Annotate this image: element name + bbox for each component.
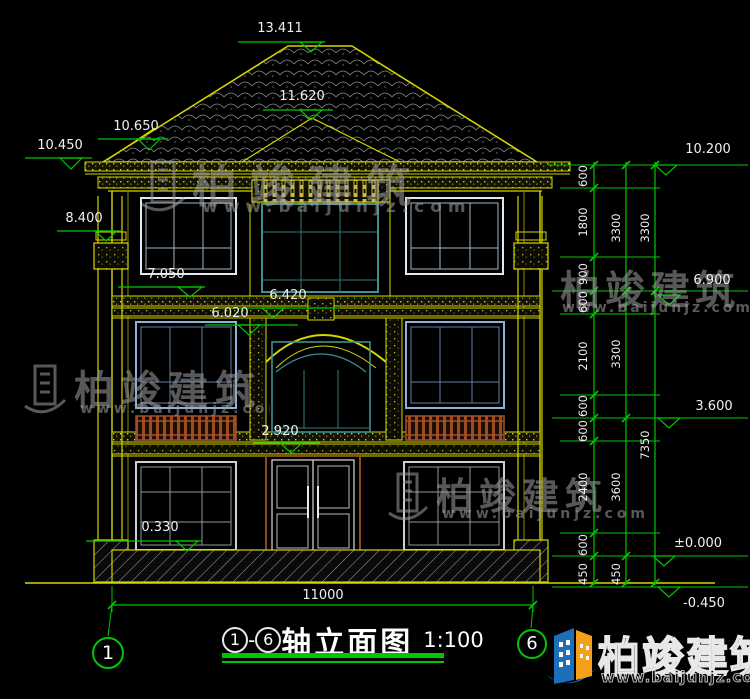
vdim: 7350 [638, 423, 652, 467]
title-axis-start: 1 [222, 627, 248, 653]
overall-width-dim: 11000 [293, 588, 353, 603]
title-scale: 1:100 [423, 628, 484, 652]
elevation-band-mid: 6.420 [254, 288, 322, 303]
elevation-f2-head: 6.020 [198, 306, 262, 321]
elevation-porch-ridge: 11.620 [262, 89, 342, 104]
vdim: 600 [576, 154, 590, 198]
elevation-site: -0.450 [668, 596, 740, 611]
title-underline-thin [222, 661, 444, 663]
center-arch-bay [250, 298, 402, 440]
elevation-door-head: 2.920 [248, 424, 312, 439]
vdim: 600 [576, 409, 590, 453]
roof [103, 46, 537, 162]
elevation-drawing [0, 0, 750, 699]
watermark-url: www.baijunjz.com [202, 197, 472, 217]
title-underline-thick [222, 653, 444, 658]
vdim: 3300 [609, 332, 623, 376]
elevation-eave-left: 10.450 [24, 138, 96, 153]
vdim: 2100 [576, 334, 590, 378]
watermark-logo-icon [138, 154, 188, 216]
cad-elevation-screenshot: 柏竣建筑 www.baijunjz.com 柏竣建筑 www.baijunjz.… [0, 0, 750, 699]
watermark-logo-icon [386, 468, 430, 526]
brand-logo-icon [540, 622, 602, 694]
elevation-eave-top-left: 10.650 [100, 119, 172, 134]
vdim: 3600 [609, 465, 623, 509]
watermark-left: 柏竣建筑 www.baijunjz.com [22, 356, 270, 424]
title-axis-end: 6 [255, 627, 281, 653]
watermark-url: www.baijunjz.com [562, 300, 750, 316]
entrance-door [266, 456, 360, 556]
vdim: 450 [576, 552, 590, 596]
elevation-f3-floor: 6.900 [680, 273, 744, 288]
watermark-logo-icon [22, 359, 68, 419]
vdim: 1800 [576, 200, 590, 244]
elevation-ground: ±0.000 [662, 536, 734, 551]
title-separator: - [248, 628, 255, 652]
vdim: 3300 [609, 206, 623, 250]
vdim: 2400 [576, 465, 590, 509]
elevation-f2-floor: 3.600 [682, 399, 746, 414]
brand-logo-url: www.baijunjz.com [601, 668, 750, 686]
vdim: 450 [609, 552, 623, 596]
elevation-eave-right: 10.200 [672, 142, 744, 157]
elevation-ridge: 13.411 [240, 21, 320, 36]
axis-bubble-1: 1 [92, 637, 124, 669]
elevation-f3-sill: 7.050 [134, 267, 198, 282]
vdim: 600 [576, 280, 590, 324]
vdim: 3300 [638, 206, 652, 250]
elevation-f1-sill: 0.330 [128, 520, 192, 535]
watermark-url: www.baijunjz.com [80, 401, 270, 417]
watermark-top: 柏竣建筑 www.baijunjz.com [138, 150, 488, 220]
elevation-capital: 8.400 [52, 211, 116, 226]
